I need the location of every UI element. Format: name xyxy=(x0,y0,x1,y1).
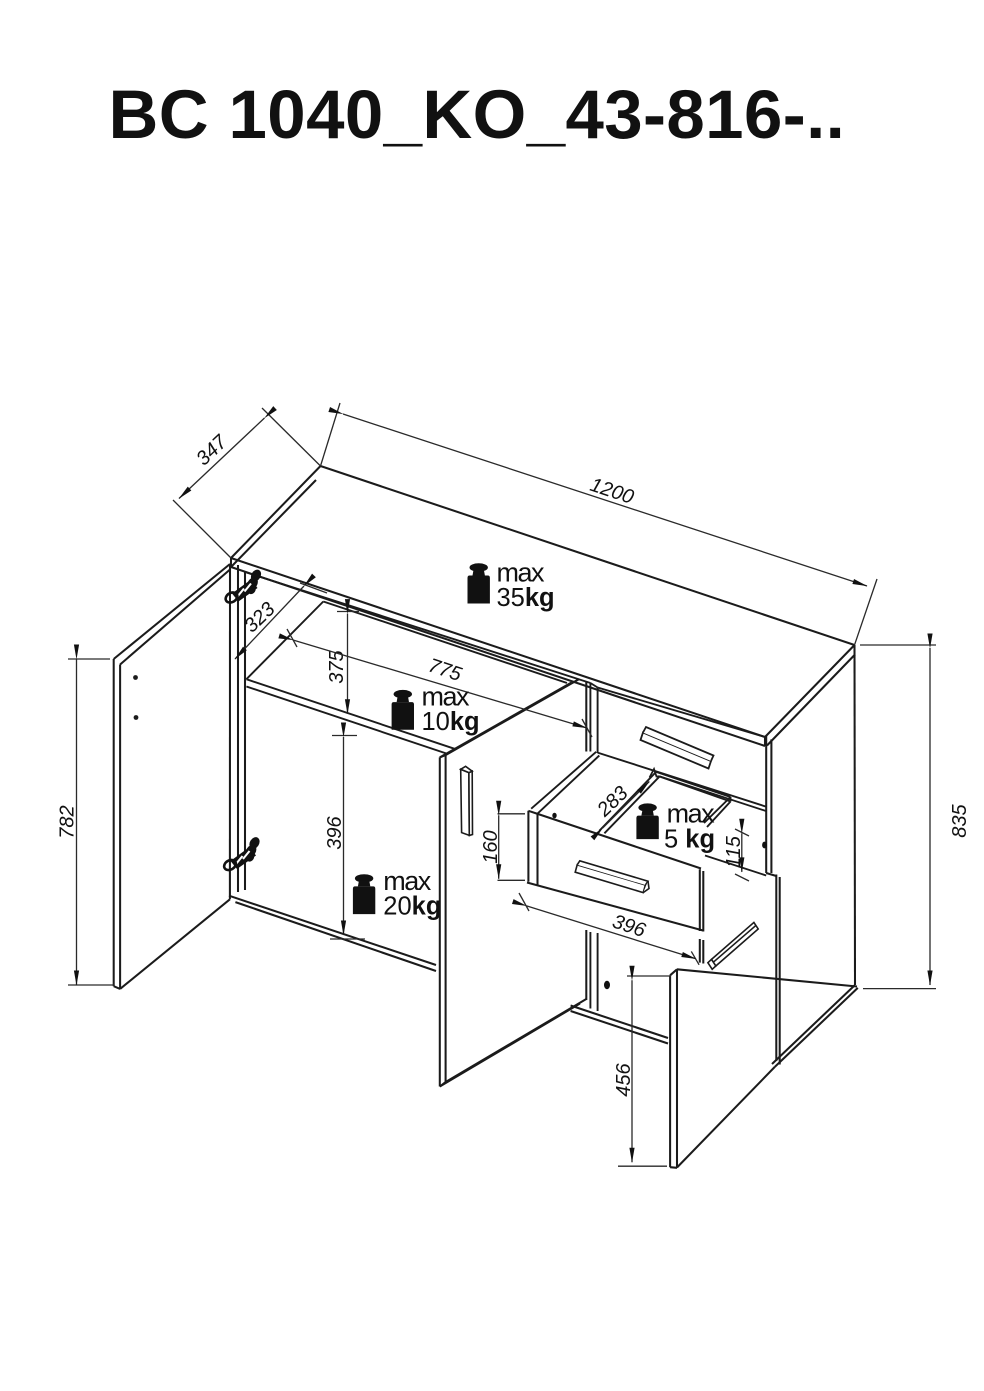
svg-text:782: 782 xyxy=(57,805,79,838)
svg-text:835: 835 xyxy=(949,803,971,837)
svg-text:10kg: 10kg xyxy=(422,708,480,736)
svg-text:396: 396 xyxy=(324,815,346,849)
svg-text:115: 115 xyxy=(723,835,745,868)
svg-text:456: 456 xyxy=(613,1062,635,1096)
svg-text:375: 375 xyxy=(326,649,348,683)
svg-text:BC 1040_KO_43-816-..: BC 1040_KO_43-816-.. xyxy=(109,76,846,153)
svg-text:20kg: 20kg xyxy=(383,893,441,921)
svg-text:5 kg: 5 kg xyxy=(664,826,715,854)
svg-text:35kg: 35kg xyxy=(497,584,555,612)
svg-text:max: max xyxy=(667,798,716,828)
svg-text:max: max xyxy=(383,866,432,896)
svg-text:160: 160 xyxy=(480,830,502,863)
svg-text:max: max xyxy=(497,558,546,588)
